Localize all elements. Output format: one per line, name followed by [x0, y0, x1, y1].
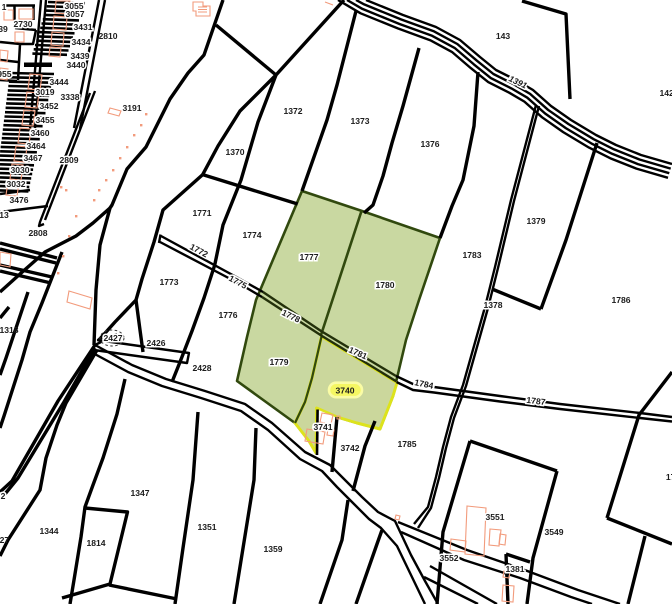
svg-text:1814: 1814	[86, 538, 105, 548]
svg-text:1373: 1373	[350, 116, 369, 126]
svg-text:13: 13	[0, 210, 9, 220]
svg-text:3741: 3741	[313, 422, 332, 432]
svg-text:3460: 3460	[30, 128, 49, 138]
svg-text:1779: 1779	[269, 357, 288, 367]
svg-text:3551: 3551	[485, 512, 504, 522]
svg-text:3030: 3030	[10, 165, 29, 175]
svg-text:3019: 3019	[35, 87, 54, 97]
svg-text:3452: 3452	[39, 101, 58, 111]
svg-text:2428: 2428	[192, 363, 211, 373]
svg-text:2810: 2810	[98, 31, 117, 41]
svg-text:1780: 1780	[375, 280, 394, 290]
svg-text:3455: 3455	[35, 115, 54, 125]
svg-text:178: 178	[666, 472, 672, 482]
svg-text:3467: 3467	[23, 153, 42, 163]
svg-text:2730: 2730	[13, 19, 32, 29]
svg-text:1318: 1318	[0, 325, 19, 335]
svg-text:3549: 3549	[544, 527, 563, 537]
svg-text:3742: 3742	[340, 443, 359, 453]
svg-text:3464: 3464	[26, 141, 45, 151]
svg-text:1376: 1376	[420, 139, 439, 149]
svg-text:1379: 1379	[526, 216, 545, 226]
svg-text:2808: 2808	[28, 228, 47, 238]
svg-text:1359: 1359	[263, 544, 282, 554]
svg-text:1351: 1351	[197, 522, 216, 532]
svg-text:143: 143	[496, 31, 511, 41]
svg-text:1381: 1381	[505, 564, 524, 574]
svg-text:1370: 1370	[225, 147, 244, 157]
svg-text:1773: 1773	[159, 277, 178, 287]
svg-text:1771: 1771	[192, 208, 211, 218]
svg-text:3444: 3444	[49, 77, 68, 87]
svg-text:1421: 1421	[659, 88, 672, 98]
svg-text:2426: 2426	[146, 338, 165, 348]
svg-text:1783: 1783	[462, 250, 481, 260]
svg-text:1777: 1777	[299, 252, 318, 262]
svg-text:2: 2	[1, 491, 6, 501]
svg-text:1785: 1785	[397, 439, 416, 449]
svg-text:2809: 2809	[59, 155, 78, 165]
svg-text:2427: 2427	[103, 333, 122, 343]
svg-text:3476: 3476	[9, 195, 28, 205]
svg-text:39: 39	[0, 24, 8, 34]
svg-text:2955: 2955	[0, 69, 12, 79]
svg-text:1347: 1347	[130, 488, 149, 498]
svg-text:3032: 3032	[6, 179, 25, 189]
svg-text:3431: 3431	[73, 22, 92, 32]
svg-text:3434: 3434	[71, 37, 90, 47]
svg-text:427: 427	[0, 535, 9, 545]
svg-text:1378: 1378	[483, 300, 502, 310]
svg-text:1372: 1372	[283, 106, 302, 116]
svg-text:3740: 3740	[335, 386, 354, 396]
svg-text:3057: 3057	[65, 9, 84, 19]
svg-text:1774: 1774	[242, 230, 261, 240]
svg-text:3440: 3440	[66, 60, 85, 70]
svg-text:1344: 1344	[39, 526, 58, 536]
svg-text:3338: 3338	[60, 92, 79, 102]
svg-text:3552: 3552	[439, 553, 458, 563]
svg-text:1776: 1776	[218, 310, 237, 320]
svg-text:1786: 1786	[611, 295, 630, 305]
svg-text:1: 1	[2, 2, 7, 12]
svg-text:3191: 3191	[122, 103, 141, 113]
